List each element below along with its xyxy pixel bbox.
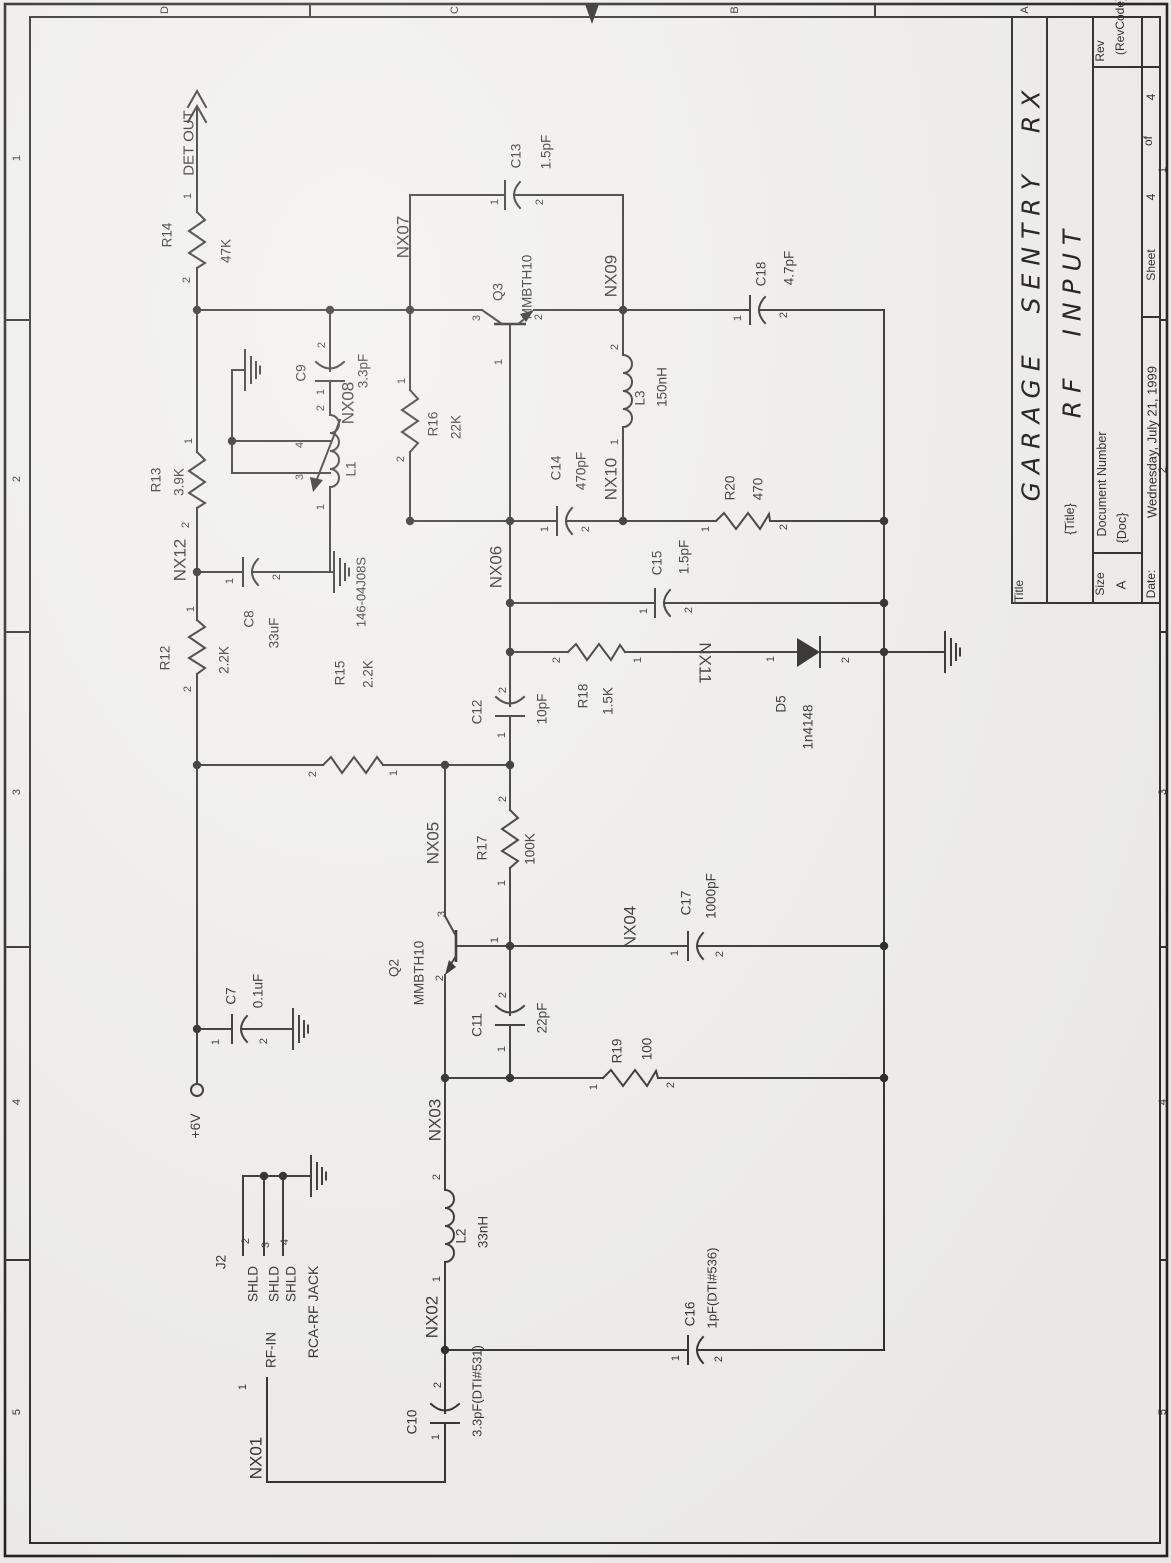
inductor-l3 [623,355,632,427]
label-c17-val: 1000pF [704,873,719,919]
label-q2-pin1: 1 [489,937,501,943]
label-r15-ref: R15 [333,661,348,686]
label-c14-pin1: 1 [539,526,551,532]
label-r16-val: 22K [449,415,464,439]
wires [188,91,945,1482]
label-r14-pin1: 1 [182,193,194,199]
inductor-l2 [445,1190,454,1262]
label-r12-val: 2.2K [217,646,232,674]
label-j2-pin4-num: 4 [279,1239,291,1245]
label-l2-pin1: 1 [431,1276,443,1282]
label-c12-val: 10pF [535,694,550,725]
label-c9-pin1: 1 [315,389,327,395]
label-tb-size-value: A [1114,580,1129,589]
label-net-nx11: NX11 [696,642,715,683]
label-l3-ref: L3 [633,390,648,405]
label-tb-rev-value: (RevCode) [1113,0,1127,55]
label-q3-pin1: 1 [493,359,505,365]
label-q3-val: MMBTH10 [520,255,535,320]
label-net-nx12: NX12 [171,539,190,582]
label-r16-ref: R16 [426,412,441,437]
wire-nx07-loop [410,195,623,310]
resistor-r12 [189,620,205,674]
scanned-schematic-page: DCBA1234512345TitleGARAGE SENTRY RX{Titl… [0,0,1171,1563]
label-c11-pin1: 1 [496,1046,508,1052]
label-r12-pin1: 1 [185,606,197,612]
label-j2-shld-b: SHLD [267,1266,282,1302]
label-net-nx06: NX06 [487,546,506,589]
label-l2-val: 33nH [476,1216,491,1248]
label-j2-pin1-num: 1 [237,1384,249,1390]
label-c8-pin2: 2 [271,574,283,580]
label-c13-pin2: 2 [534,199,546,205]
label-r17-ref: R17 [475,836,490,861]
label-d5-val: 1n4148 [801,704,816,749]
label-net-nx03: NX03 [426,1099,445,1142]
label-tb-doc-label: Document Number [1095,432,1109,537]
label-l2-ref: L2 [454,1228,469,1243]
label-c13-val: 1.5pF [539,135,554,170]
label-zone-num-right-5: 5 [1157,1409,1169,1415]
label-c13-pin1: 1 [489,199,501,205]
wire-j2-shield [243,1176,311,1255]
label-net-nx04: NX04 [621,906,640,949]
label-c17-pin2: 2 [714,951,726,957]
ground-c7-icon [293,1009,308,1049]
label-r16-pin2: 2 [395,456,407,462]
label-tb-size-label: Size [1093,572,1107,596]
label-c11-pin2: 2 [497,992,509,998]
border-outer [5,4,1167,1556]
label-c7-pin1: 1 [210,1039,222,1045]
label-r19-val: 100 [640,1038,655,1061]
label-zone-num-left-4: 4 [11,1099,23,1105]
label-r18-ref: R18 [576,684,591,709]
label-r14-pin2: 2 [181,277,193,283]
label-j2-rf-in: RF-IN [264,1332,279,1368]
label-c10-pin1: 1 [430,1434,442,1440]
label-l2-pin2: 2 [431,1174,443,1180]
label-c18-ref: C18 [754,262,769,287]
label-c16-pin1: 1 [670,1355,682,1361]
label-r18-val: 1.5K [601,687,616,715]
label-r20-pin1: 1 [700,526,712,532]
label-j2-shld-c: SHLD [284,1266,299,1302]
label-c17-ref: C17 [679,891,694,916]
label-tb-date-label: Date: [1144,570,1158,599]
label-r15-pin2: 2 [307,771,319,777]
label-q2-pin2: 2 [434,975,446,981]
label-c12-pin2: 2 [497,687,509,693]
label-l1-part: 146-04J08S [354,557,369,627]
label-q3-pin2: 2 [533,314,545,320]
label-net-nx05: NX05 [424,822,443,865]
label-d5-pin2: 2 [840,657,852,663]
label-c14-pin2: 2 [580,526,592,532]
label-c16-ref: C16 [683,1302,698,1327]
resistor-r13 [189,452,205,508]
label-r20-ref: R20 [723,476,738,501]
label-r15-val: 2.2K [361,660,376,688]
label-q3-ref: Q3 [491,283,506,301]
resistor-r15 [323,757,383,773]
label-r13-val: 3.9K [172,468,187,496]
label-c10-pin2: 2 [432,1382,444,1388]
inductor-l1-arrowhead-icon [310,477,323,492]
label-l3-pin2: 2 [609,344,621,350]
label-tb-title-label: Title [1012,580,1026,603]
label-c18-pin1: 1 [732,315,744,321]
label-r20-pin2: 2 [778,524,790,530]
label-r19-pin2: 2 [665,1082,677,1088]
label-j2-pin2-num: 2 [240,1238,252,1244]
label-tb-sheet-total: 4 [1144,93,1158,100]
label-j2-jack-name: RCA-RF JACK [305,1265,321,1358]
label-net-nx08: NX08 [339,382,358,425]
label-q2-ref: Q2 [387,959,402,977]
label-r12-ref: R12 [158,646,173,671]
plus6v-terminal-icon [191,1084,203,1096]
label-r18-pin2: 2 [551,657,563,663]
label-r17-pin2: 2 [497,796,509,802]
label-tb-subtitle-label: {Title} [1063,503,1077,535]
label-c17-pin1: 1 [669,950,681,956]
label-c10-ref: C10 [405,1410,420,1435]
label-c15-ref: C15 [650,551,665,576]
resistor-r18 [568,644,625,660]
label-c8-ref: C8 [242,610,257,627]
label-c8-pin1: 1 [224,578,236,584]
resistor-r16 [402,390,418,452]
label-c15-pin2: 2 [683,607,695,613]
label-r20-val: 470 [751,478,766,501]
label-r15-pin1: 1 [388,770,400,776]
label-net-nx07: NX07 [394,216,413,259]
label-tb-of-label: of [1141,135,1155,146]
label-j2-ref: J2 [214,1255,229,1269]
label-net-plus6v: +6V [187,1113,203,1139]
label-c15-val: 1.5pF [677,540,692,575]
ground-d5-icon [945,632,960,672]
label-c9-ref: C9 [294,364,309,381]
label-l3-val: 150nH [655,367,670,407]
schematic-canvas: DCBA1234512345TitleGARAGE SENTRY RX{Titl… [0,0,1171,1563]
label-tb-sheet-num: 4 [1144,193,1158,200]
label-zone-num-right-4: 4 [1157,1099,1169,1105]
label-l1-pin4: 4 [294,442,306,448]
resistor-r17 [502,810,518,868]
label-r17-pin1: 1 [496,880,508,886]
label-c11-val: 22pF [535,1003,550,1034]
label-tb-rev-label: Rev [1093,40,1107,61]
label-c16-pin2: 2 [713,1356,725,1362]
label-c13-ref: C13 [509,144,524,169]
label-net-nx01: NX01 [247,1437,266,1480]
ground-l1-icon [245,350,260,390]
label-c12-ref: C12 [470,700,485,725]
label-c18-val: 4.7pF [782,251,797,286]
label-zone-letter-d: D [159,6,171,14]
label-q2-val: MMBTH10 [412,941,427,1006]
resistor-r20 [716,513,770,529]
label-zone-num-left-2: 2 [11,476,23,482]
label-tb-sheet-label: Sheet [1144,249,1158,281]
label-tb-title-value: GARAGE SENTRY RX [1017,83,1046,502]
label-c16-val: 1pF(DTI#536) [705,1248,720,1329]
label-d5-ref: D5 [774,695,789,712]
label-q3-pin3: 3 [471,315,483,321]
diode-d5 [797,637,820,667]
wire-l1-taps [232,370,330,473]
label-l1-pin1: 1 [315,504,327,510]
label-zone-num-left-5: 5 [11,1409,23,1415]
label-r17-val: 100K [523,833,538,865]
label-q2-pin3: 3 [436,911,448,917]
alignment-arrow-icon [585,4,599,24]
label-l1-ref: L1 [344,461,359,476]
label-r19-ref: R19 [610,1039,625,1064]
label-zone-num-left-3: 3 [11,789,23,795]
label-net-nx10: NX10 [602,458,621,501]
label-c11-ref: C11 [470,1013,485,1037]
label-r13-pin2: 2 [180,522,192,528]
label-zone-letter-b: B [729,6,741,13]
label-r13-ref: R13 [149,468,164,493]
junction-dots [193,306,888,1354]
label-c14-ref: C14 [549,455,564,480]
label-zone-num-right-1: 1 [1157,167,1169,173]
label-c8-val: 33uF [267,618,282,649]
label-r18-pin1: 1 [632,657,644,663]
resistor-r19 [603,1070,658,1086]
q2-leads [445,916,456,964]
label-l1-pin2: 2 [315,405,327,411]
q2-emitter-arrow-icon [445,960,456,975]
label-c12-pin1: 1 [496,732,508,738]
label-r13-pin1: 1 [183,438,195,444]
label-tb-subtitle-value: RF INPUT [1058,222,1087,418]
label-c9-pin2: 2 [316,342,328,348]
ground-c8-icon [334,552,349,592]
label-zone-letter-a: A [1019,6,1031,14]
resistor-r14 [189,212,205,268]
ground-j2-icon [311,1156,326,1196]
label-j2-shld-a: SHLD [246,1266,261,1302]
label-c15-pin1: 1 [638,608,650,614]
label-j2-pin3-num: 3 [260,1242,272,1248]
label-r16-pin1: 1 [396,378,408,384]
label-r14-ref: R14 [160,222,175,247]
label-zone-num-left-1: 1 [11,155,23,161]
label-tb-doc-value: {Doc} [1115,513,1129,544]
label-r19-pin1: 1 [588,1084,600,1090]
label-tb-date-value: Wednesday, July 21, 1999 [1145,366,1160,518]
label-net-det-out: DET OUT [181,110,198,176]
label-c7-val: 0.1uF [251,974,266,1009]
zone-ticks [5,4,1167,1260]
label-c14-val: 470pF [574,452,589,490]
label-c10-val: 3.3pF(DTI#531) [470,1345,485,1437]
transistor-q2 [445,916,456,975]
label-r12-pin2: 2 [182,686,194,692]
labels-layer: DCBA1234512345TitleGARAGE SENTRY RX{Titl… [11,0,1169,1479]
label-c7-pin2: 2 [258,1038,270,1044]
label-net-nx09: NX09 [602,255,621,298]
label-c18-pin2: 2 [778,312,790,318]
label-net-nx02: NX02 [423,1296,442,1339]
label-r14-val: 47K [219,239,234,263]
label-c9-val: 3.3pF [356,354,371,389]
label-l3-pin1: 1 [609,439,621,445]
label-zone-num-right-3: 3 [1157,789,1169,795]
label-d5-pin1: 1 [765,656,777,662]
label-zone-letter-c: C [449,6,461,14]
d5-anode-triangle-icon [797,638,820,667]
label-l1-pin3: 3 [294,474,306,480]
label-c7-ref: C7 [224,987,239,1004]
sheet-border [5,4,1167,1556]
